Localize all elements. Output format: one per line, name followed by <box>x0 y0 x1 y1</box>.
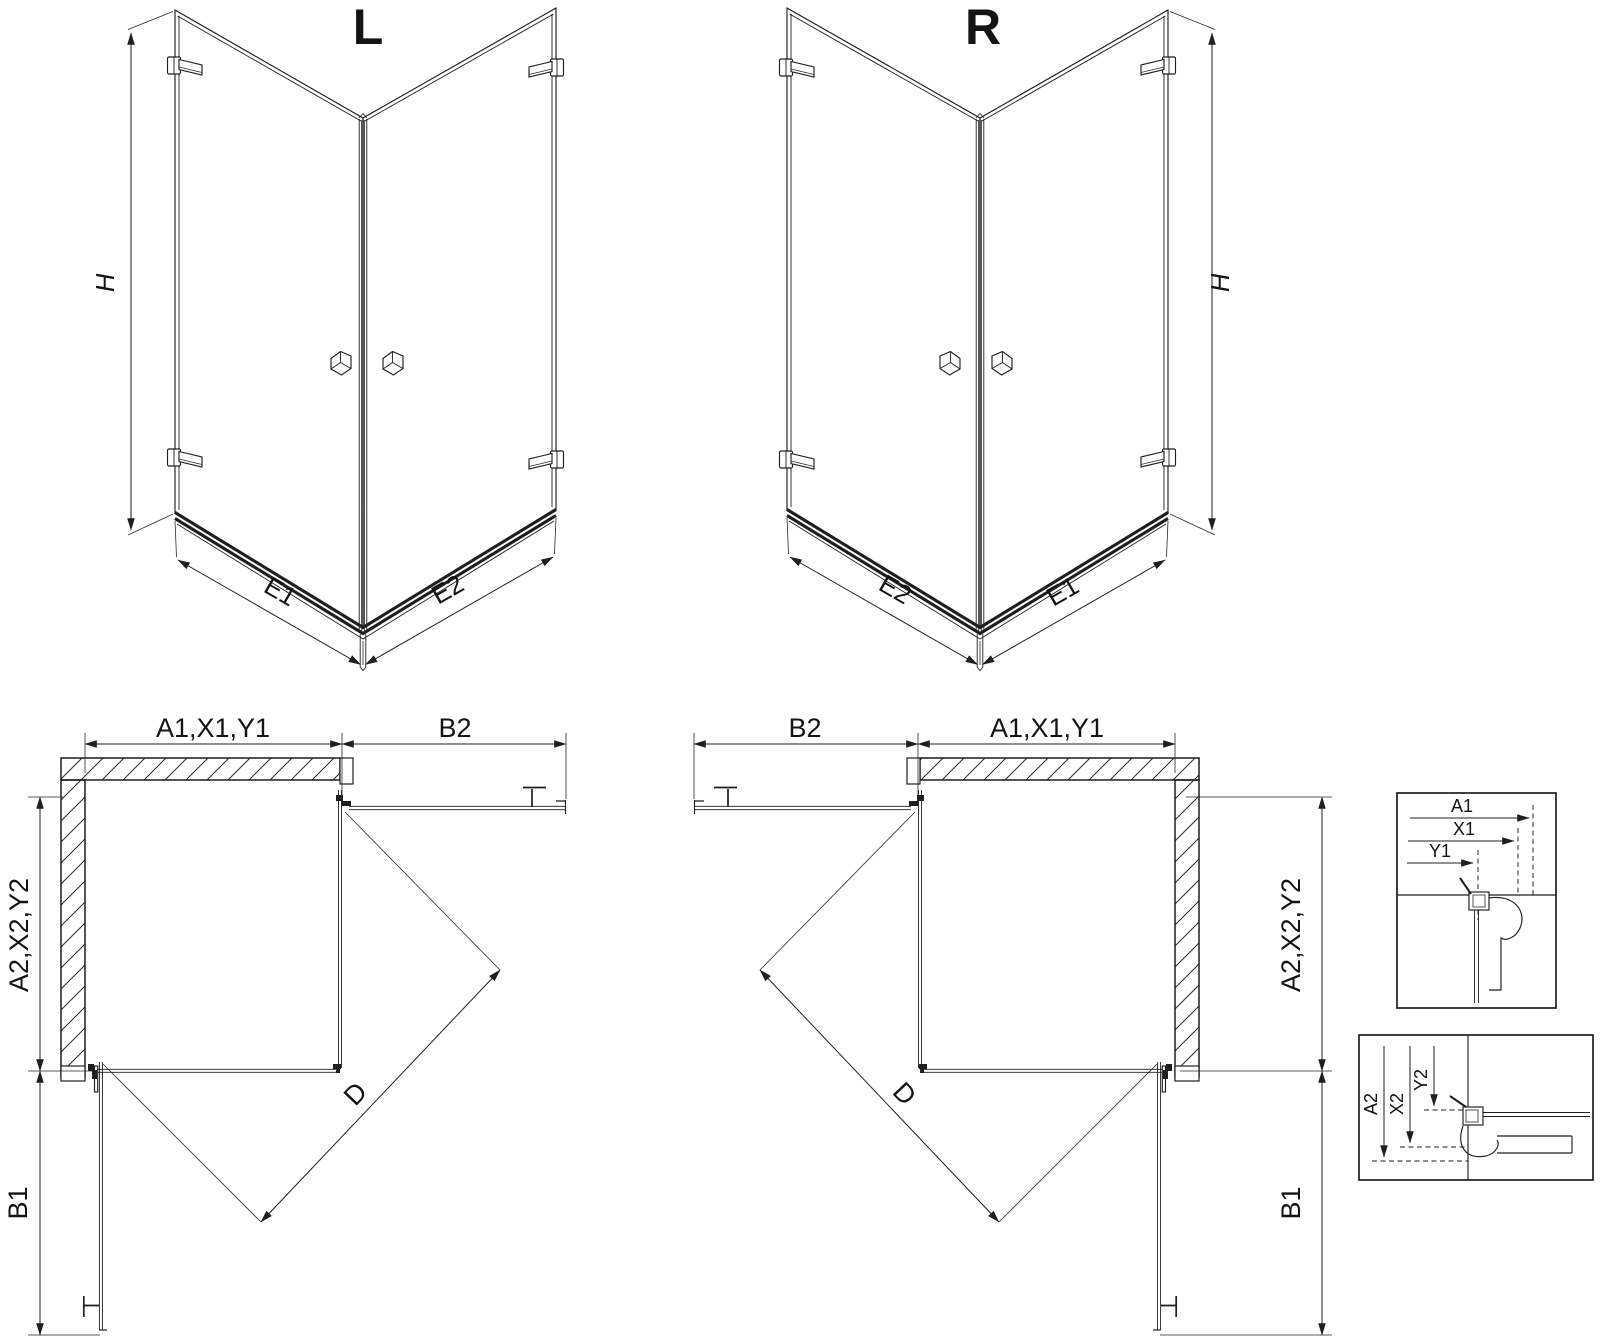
edge-label-e2: E2 <box>426 568 468 610</box>
edge-label-e1: E1 <box>259 570 302 612</box>
detail-label-x2: X2 <box>1387 1093 1407 1115</box>
door-b1-open <box>1158 1062 1161 1330</box>
label-a1x1y1: A1,X1,Y1 <box>990 713 1104 743</box>
technical-drawing-page: L H E1 E2 R H E2 E1 <box>0 0 1600 1339</box>
detail-label-x1: X1 <box>1453 819 1475 839</box>
door-handle-icon <box>714 788 737 808</box>
detail-label-a1: A1 <box>1451 796 1473 816</box>
detail-label-a2: A2 <box>1361 1093 1381 1115</box>
wall-top <box>61 758 340 780</box>
label-a1x1y1: A1,X1,Y1 <box>156 713 270 743</box>
door-pivot <box>88 1064 94 1071</box>
glass-side-closed <box>922 1069 1165 1072</box>
door-handle-icon <box>83 1296 99 1317</box>
label-a2x2y2: A2,X2,Y2 <box>4 878 34 992</box>
glass-side-closed <box>919 790 922 1068</box>
door-b1-open <box>99 1062 102 1330</box>
entry-diagonal-dimension <box>261 970 500 1222</box>
door-pivot <box>1166 1064 1172 1071</box>
label-b1: B1 <box>1276 1186 1306 1219</box>
wall-left <box>61 780 85 1077</box>
corner-connector <box>919 1064 927 1069</box>
glass-side-closed <box>95 1069 338 1072</box>
detail-label-y1: Y1 <box>1429 841 1451 861</box>
height-label: H <box>90 270 120 294</box>
edge-label-e2: E2 <box>874 568 916 610</box>
view-title-r: R <box>965 0 1001 55</box>
label-d: D <box>887 1076 922 1111</box>
entry-diagonal-dimension <box>760 970 999 1222</box>
door-swing-line <box>999 1064 1157 1222</box>
detail-label-y2: Y2 <box>1411 1069 1431 1091</box>
wall-top <box>920 758 1199 780</box>
label-b2: B2 <box>438 713 471 743</box>
wall-right <box>1175 780 1199 1077</box>
shower-enclosure-diagram: L H E1 E2 R H E2 E1 <box>0 0 1600 1339</box>
detail-view-top: A1 X1 Y1 <box>1397 793 1556 1008</box>
door-swing-line <box>760 812 915 970</box>
detail-view-bottom: A2 X2 Y2 <box>1359 1035 1593 1180</box>
door-end-cap <box>695 800 705 814</box>
label-a2x2y2: A2,X2,Y2 <box>1276 878 1306 992</box>
plan-view-right: B2 A1,X1,Y1 A2,X2,Y2 B1 D <box>694 713 1332 1335</box>
door-b2-open <box>694 806 911 809</box>
label-b2: B2 <box>788 713 821 743</box>
door-handle-icon <box>523 788 546 808</box>
wall-end-profile <box>1175 1066 1199 1081</box>
view-title-l: L <box>353 0 384 55</box>
label-d: D <box>338 1076 373 1111</box>
door-end-cap <box>556 800 566 814</box>
glass-side-closed <box>339 790 342 1068</box>
wall-end-profile <box>61 1066 85 1081</box>
perspective-view-r: R H E2 E1 <box>780 0 1235 671</box>
height-label: H <box>1205 270 1235 294</box>
corner-connector <box>333 1064 341 1069</box>
door-b2-open <box>349 806 566 809</box>
label-b1: B1 <box>3 1186 33 1219</box>
door-swing-line <box>345 812 500 970</box>
edge-label-e1: E1 <box>1041 570 1084 612</box>
perspective-view-l: L H E1 E2 <box>90 0 563 671</box>
door-swing-line <box>103 1064 261 1222</box>
plan-view-left: A1,X1,Y1 B2 A2,X2,Y2 B1 D <box>3 713 566 1335</box>
door-handle-icon <box>1161 1296 1177 1317</box>
